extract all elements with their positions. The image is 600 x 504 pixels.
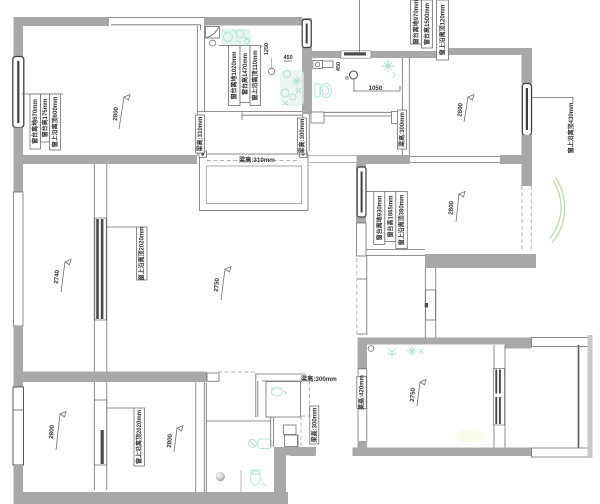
svg-text:2800: 2800 xyxy=(166,433,174,448)
svg-text:2750: 2750 xyxy=(213,277,221,292)
svg-text:梁高:420mm: 梁高:420mm xyxy=(358,375,366,410)
svg-text:2800: 2800 xyxy=(448,200,456,215)
svg-text:窗台高1470mm: 窗台高1470mm xyxy=(241,53,249,95)
svg-text:梁高:300mm: 梁高:300mm xyxy=(398,112,406,147)
svg-text:窗台离地930mm: 窗台离地930mm xyxy=(375,196,383,241)
svg-text:窗上沿离顶120mm: 窗上沿离顶120mm xyxy=(439,5,447,56)
svg-text:梁高:310mm: 梁高:310mm xyxy=(238,156,275,164)
svg-text:窗台高1500mm: 窗台高1500mm xyxy=(423,3,431,45)
svg-text:窗台离地1020mm: 窗台离地1020mm xyxy=(230,51,238,99)
svg-text:窗台高175mm: 窗台高175mm xyxy=(41,99,49,138)
svg-text:窗台高1865mm: 窗台高1865mm xyxy=(386,195,394,237)
svg-text:2740: 2740 xyxy=(53,269,61,284)
svg-text:窗上沿离顶2020mm: 窗上沿离顶2020mm xyxy=(135,410,143,464)
svg-text:2800: 2800 xyxy=(457,102,465,117)
svg-text:窗上沿离顶110mm: 窗上沿离顶110mm xyxy=(251,50,259,100)
svg-text:梁高:300mm: 梁高:300mm xyxy=(300,375,337,383)
svg-text:窗台离地670mm: 窗台离地670mm xyxy=(31,99,39,144)
svg-text:梁高:300mm: 梁高:300mm xyxy=(310,408,318,443)
svg-text:2750: 2750 xyxy=(409,387,417,402)
svg-text:1250: 1250 xyxy=(264,43,270,55)
svg-text:窗上沿离顶380mm: 窗上沿离顶380mm xyxy=(398,195,406,246)
svg-text:窗上沿离顶600mm: 窗上沿离顶600mm xyxy=(51,97,59,148)
svg-text:450: 450 xyxy=(284,55,293,61)
svg-text:梁高:310mm: 梁高:310mm xyxy=(196,117,204,152)
svg-text:窗台离地970mm: 窗台离地970mm xyxy=(412,0,420,44)
svg-text:450: 450 xyxy=(336,62,342,71)
svg-text:窗上沿离顶430mm: 窗上沿离顶430mm xyxy=(567,103,575,154)
svg-text:窗上沿离顶2020mm: 窗上沿离顶2020mm xyxy=(138,226,146,280)
svg-text:梁高:300mm: 梁高:300mm xyxy=(298,119,306,154)
svg-text:2800: 2800 xyxy=(112,106,120,121)
svg-text:2800: 2800 xyxy=(48,424,56,439)
